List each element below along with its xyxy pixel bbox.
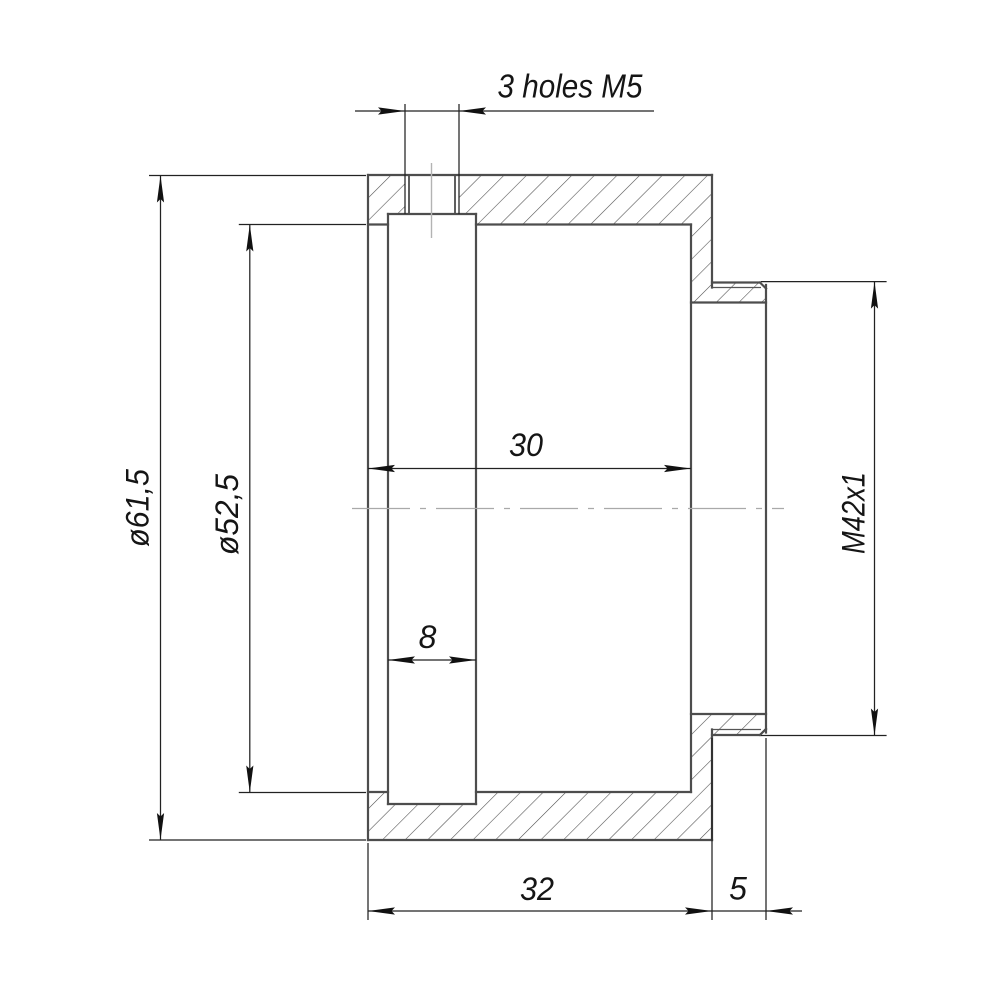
svg-text:8: 8 — [419, 619, 437, 655]
svg-text:M42x1: M42x1 — [836, 472, 872, 554]
svg-text:5: 5 — [729, 871, 747, 907]
svg-text:30: 30 — [509, 427, 543, 463]
svg-text:ø52,5: ø52,5 — [209, 474, 245, 555]
svg-text:ø61,5: ø61,5 — [120, 469, 156, 547]
svg-text:32: 32 — [520, 871, 554, 907]
svg-text:3 holes M5: 3 holes M5 — [498, 68, 644, 105]
